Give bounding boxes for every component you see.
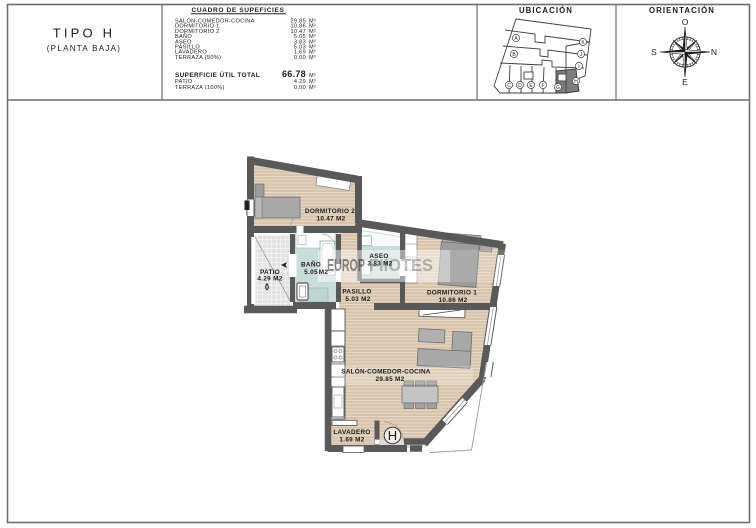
svg-text:29.85 M2: 29.85 M2 <box>375 376 404 383</box>
svg-text:ORIENTACIÓN: ORIENTACIÓN <box>649 6 715 15</box>
svg-text:PASILLO: PASILLO <box>342 289 371 296</box>
svg-text:N: N <box>711 47 717 57</box>
svg-text:M2: M2 <box>319 269 329 276</box>
svg-text:5.03 M2: 5.03 M2 <box>345 296 370 303</box>
svg-text:UBICACIÓN: UBICACIÓN <box>519 6 573 15</box>
svg-text:M²: M² <box>309 85 316 91</box>
svg-text:10.47 M2: 10.47 M2 <box>316 216 345 223</box>
svg-text:C: C <box>507 83 511 89</box>
svg-text:3.83 M2: 3.83 M2 <box>367 261 392 268</box>
svg-text:DORMITORIO 2: DORMITORIO 2 <box>305 208 355 215</box>
svg-text:S: S <box>651 47 657 57</box>
svg-text:0.00: 0.00 <box>294 55 306 61</box>
svg-text:SUPERFICIE ÚTIL TOTAL: SUPERFICIE ÚTIL TOTAL <box>175 70 260 79</box>
svg-text:H: H <box>574 79 578 85</box>
svg-text:I: I <box>578 64 579 70</box>
svg-text:BAÑO: BAÑO <box>301 260 321 269</box>
svg-text:H: H <box>388 428 397 443</box>
svg-text:D: D <box>518 83 522 89</box>
svg-text:EUROP: EUROP <box>327 255 365 275</box>
svg-text:TIPO H: TIPO H <box>53 26 116 41</box>
svg-text:(PLANTA BAJA): (PLANTA BAJA) <box>47 44 122 53</box>
svg-text:10.86 M2: 10.86 M2 <box>438 297 467 304</box>
svg-text:M²: M² <box>309 55 316 61</box>
svg-text:1.69 M2: 1.69 M2 <box>339 437 364 444</box>
svg-text:5.05: 5.05 <box>304 269 318 276</box>
svg-text:DORMITORIO 1: DORMITORIO 1 <box>427 290 477 297</box>
svg-text:CUADRO DE SUPEFICIES: CUADRO DE SUPEFICIES <box>192 7 285 14</box>
svg-text:F: F <box>541 83 544 89</box>
svg-text:ASEO: ASEO <box>369 253 388 260</box>
svg-text:4.29 M2: 4.29 M2 <box>257 276 282 283</box>
svg-text:0.00: 0.00 <box>294 85 306 91</box>
svg-text:SALÓN-COMEDOR-COCINA: SALÓN-COMEDOR-COCINA <box>341 367 430 376</box>
svg-text:E: E <box>682 77 688 87</box>
svg-text:TERRAZA (100%): TERRAZA (100%) <box>175 85 225 91</box>
svg-text:TERRAZA (50%): TERRAZA (50%) <box>175 55 221 61</box>
svg-text:66.78: 66.78 <box>282 69 306 79</box>
svg-text:LAVADERO: LAVADERO <box>333 429 370 436</box>
svg-text:O: O <box>682 17 689 27</box>
svg-text:G: G <box>556 85 560 91</box>
